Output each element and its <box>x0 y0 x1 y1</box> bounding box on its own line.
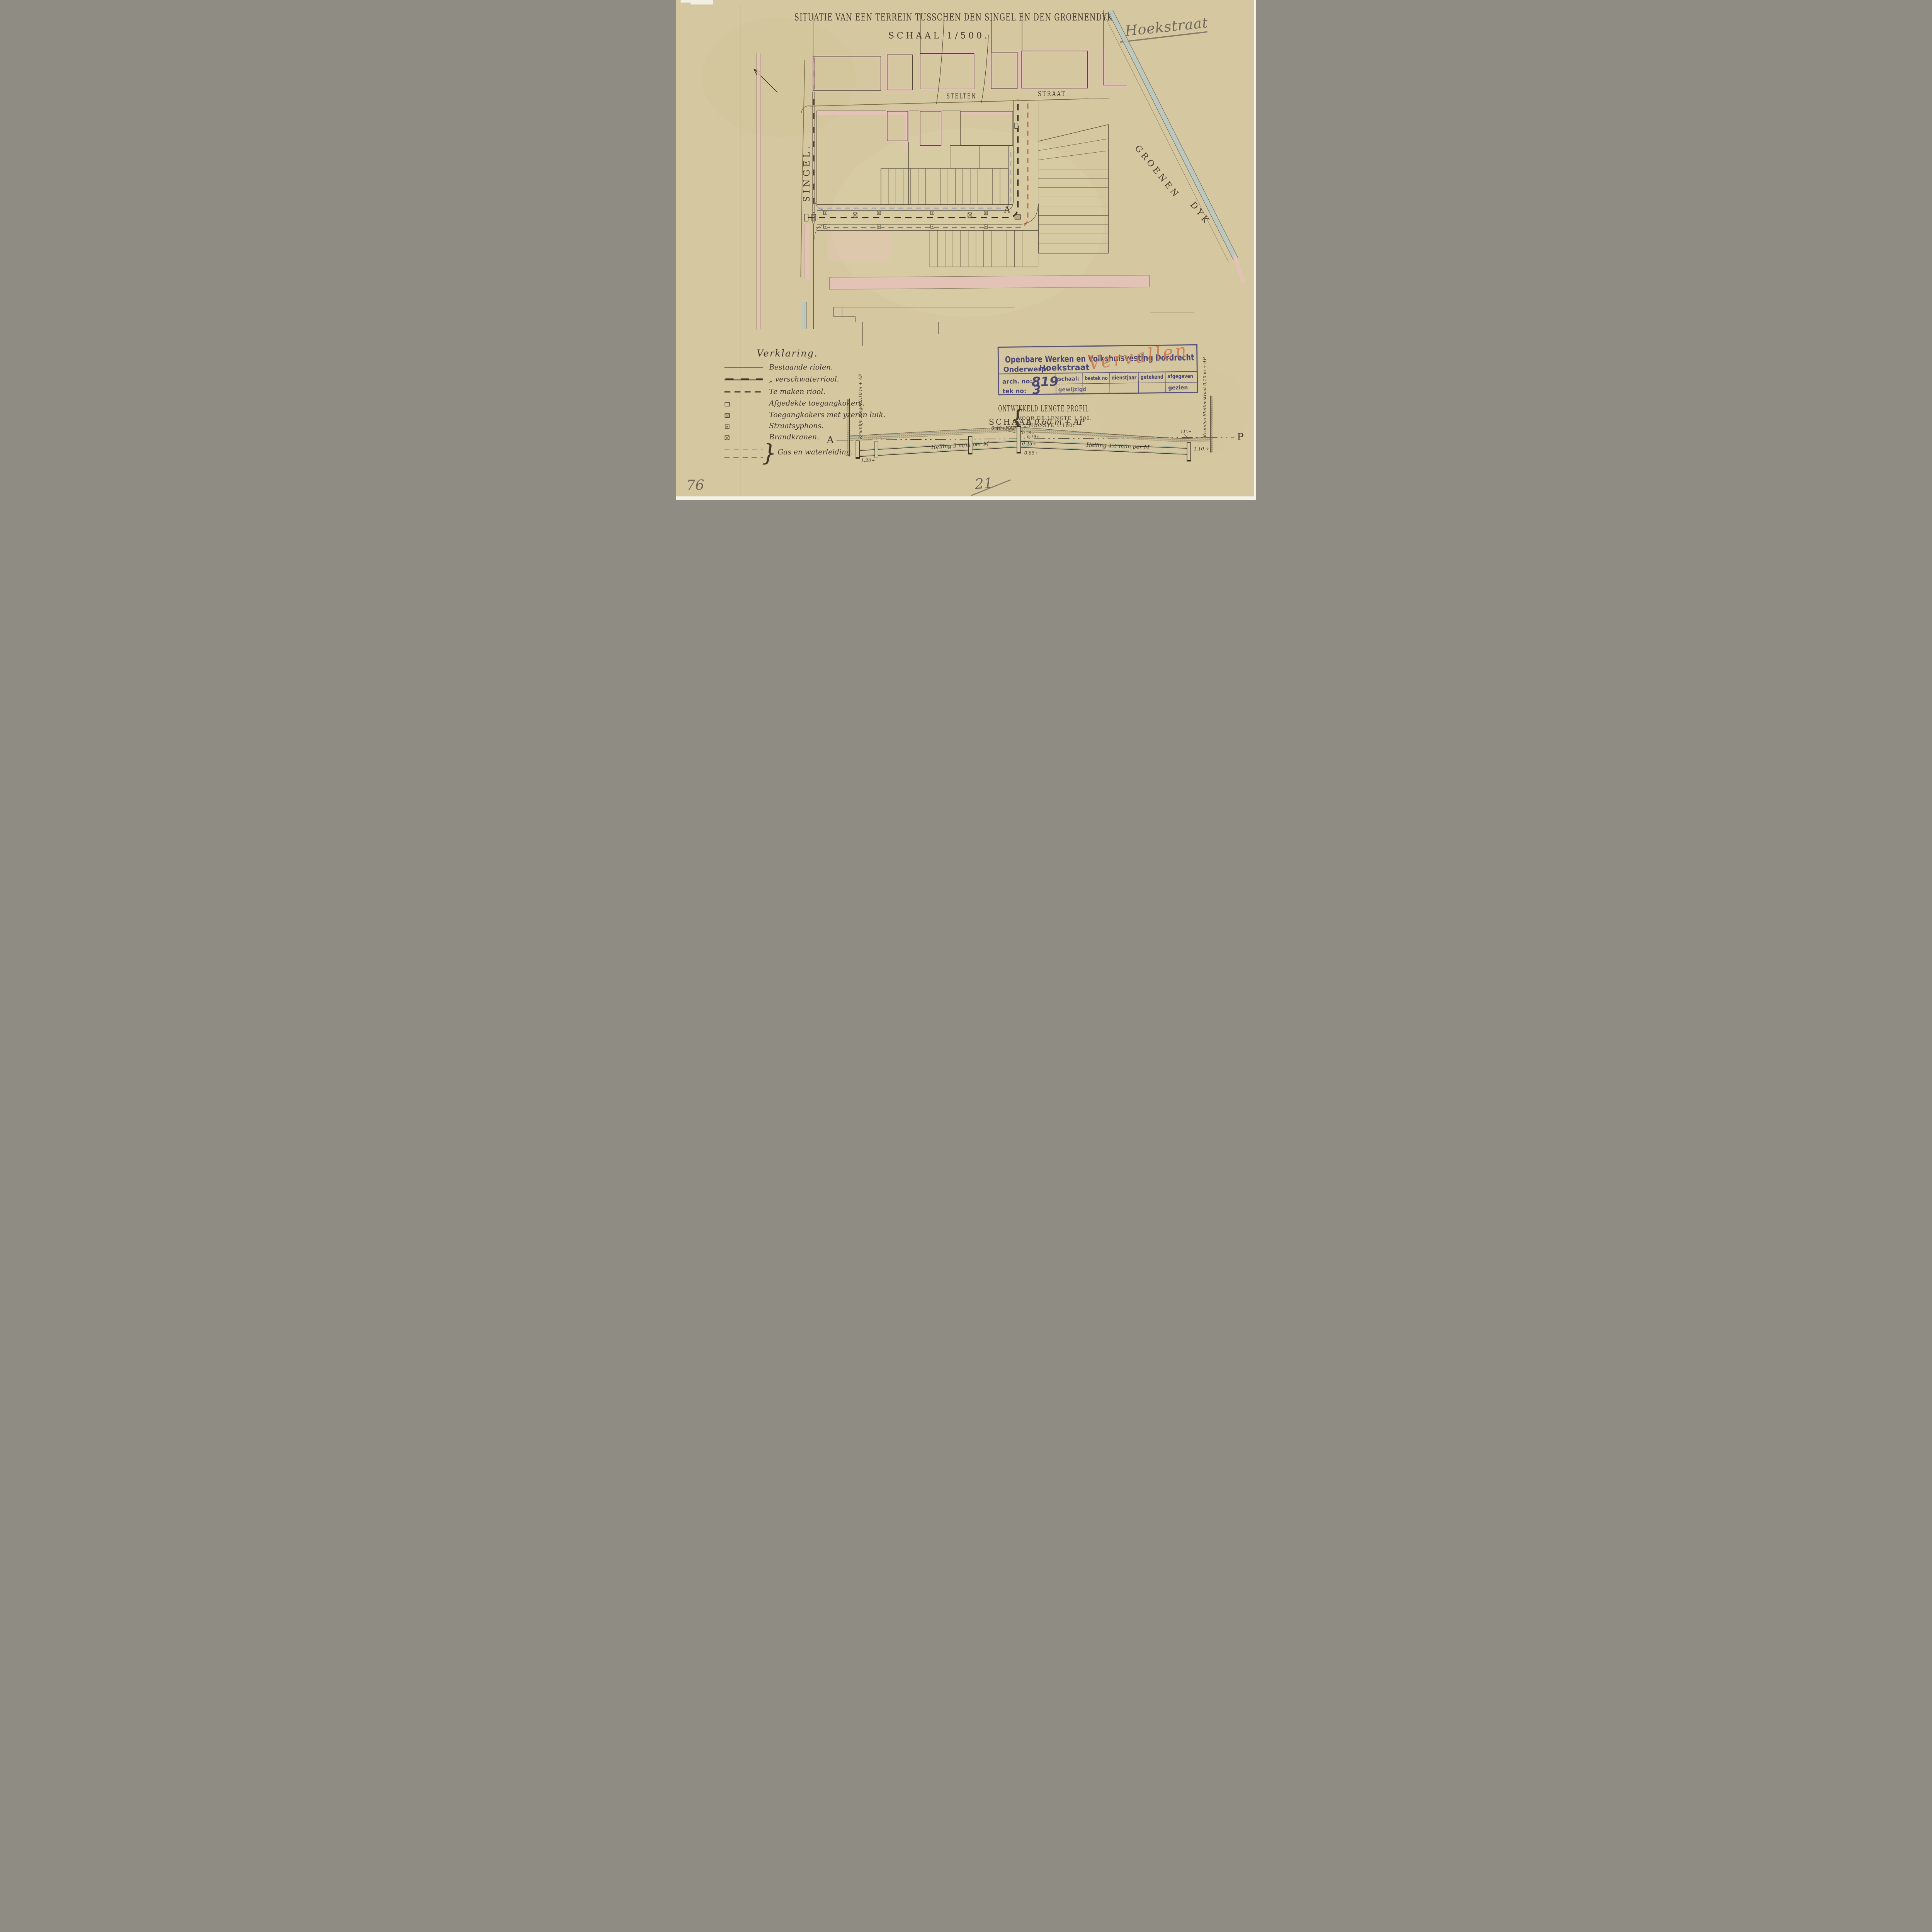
legend-item-label: Brandkranen. <box>769 433 819 441</box>
label-crest-right: Kruinlyn Steltenstraat 0,10 m + AP <box>1202 357 1207 438</box>
label-045: 0.45÷ <box>1022 441 1036 446</box>
water-crossing <box>802 302 807 329</box>
scan-edge <box>681 0 691 3</box>
legend-item-label: Te maken riool. <box>769 388 825 396</box>
legend-item-label: Gas en waterleiding. <box>778 448 853 456</box>
label-019: 0.19+ <box>1027 434 1040 439</box>
iron-lid-shaft-symbol <box>812 214 816 221</box>
legend-title: Verklaring. <box>757 348 818 359</box>
legend-item-label: Bestaande riolen. <box>769 364 833 372</box>
street-label-singel: SINGEL. <box>802 143 812 202</box>
singel-pink-wash <box>757 53 761 329</box>
stamp-col-getekend: getekend <box>1141 374 1163 381</box>
stamp-tek-value: 3 <box>1032 383 1041 397</box>
covered-shaft-symbol <box>804 214 808 221</box>
stamp-col-bestek: bestek no <box>1085 375 1108 382</box>
legend-brace: } <box>762 439 777 466</box>
scan-edge <box>1254 0 1256 500</box>
iron-lid-shaft-symbol <box>1015 215 1020 219</box>
label-crest-left: Kruinlijn Singel 0,10 m + AP <box>858 374 863 439</box>
street-label-stelten: STELTEN <box>947 92 977 100</box>
stamp-gewijzigd: gewijzigd <box>1058 386 1087 393</box>
label-nap: 0.40+NAP <box>992 425 1017 431</box>
stamp-onderwerp-value: Hoekstraat <box>1039 363 1090 373</box>
covered-shaft-symbol <box>1015 123 1018 129</box>
scale-note: SCHAAL 1/500. <box>888 31 990 41</box>
pencil-number-left: 76 <box>686 477 704 493</box>
map-point-a: A <box>1003 205 1010 215</box>
south-pink-block <box>830 275 1150 289</box>
stamp-tek-label: tek no: <box>1003 388 1027 395</box>
legend-item-label: Afgedekte toegangkokers. <box>768 400 864 408</box>
label-note-right: 11'.÷ <box>1180 429 1192 434</box>
legend-item-label: „ verschwaterriool. <box>769 376 839 384</box>
profile-end-left: A <box>827 434 834 446</box>
page-title: SITUATIE VAN EEN TERREIN TUSSCHEN DEN SI… <box>794 12 1113 23</box>
scan-edge <box>676 496 1256 500</box>
stamp-col-schaal: schaal: <box>1058 376 1079 383</box>
label-085: 0.85÷ <box>1024 450 1039 456</box>
label-top-a: A 0.60 m + AP <box>1026 417 1085 427</box>
scan-edge <box>690 0 713 5</box>
pencil-number-center: 21 <box>974 474 993 492</box>
iron-lid-shaft-legend-icon <box>725 413 730 417</box>
legend-item-label: Toegangkokers met yzeren luik. <box>769 411 885 419</box>
stamp-arch-label: arch. no: <box>1002 378 1032 385</box>
profile-end-right: P <box>1237 431 1243 443</box>
scanned-drawing: SITUATIE VAN EEN TERREIN TUSSCHEN DEN SI… <box>676 0 1256 500</box>
paper-background <box>676 0 1256 500</box>
stamp-gezien: gezien <box>1168 384 1188 391</box>
drawing-canvas: SITUATIE VAN EEN TERREIN TUSSCHEN DEN SI… <box>676 0 1256 500</box>
stamp-col-afgegeven: afgegeven <box>1167 373 1193 380</box>
stamp-col-dienstjaar: dienstjaar <box>1112 374 1137 381</box>
label-120: 1.20÷ <box>861 457 875 463</box>
street-label-straat: STRAAT <box>1038 90 1066 98</box>
legend-item-label: Straatsyphons. <box>769 422 823 430</box>
label-110: 1.10.÷ <box>1194 446 1209 452</box>
